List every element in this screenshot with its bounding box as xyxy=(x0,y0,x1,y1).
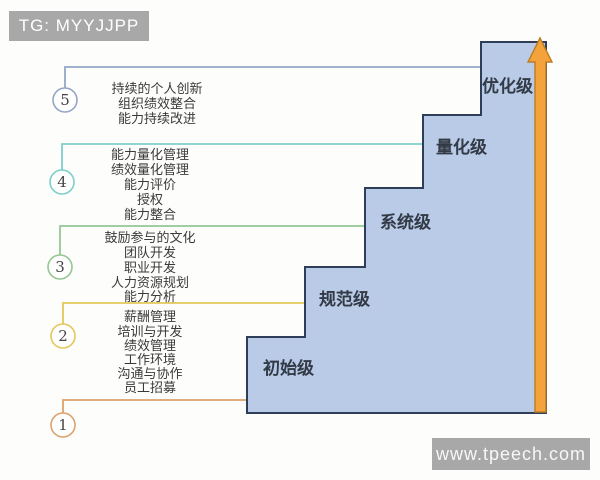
level-item: 鼓励参与的文化 xyxy=(104,230,195,246)
level-item: 薪酬管理 xyxy=(124,310,176,325)
step-label-initial: 初始级 xyxy=(263,358,314,378)
step-label-quantified: 量化级 xyxy=(436,137,487,157)
level-item: 能力持续改进 xyxy=(118,112,196,127)
level-item: 沟通与协作 xyxy=(117,367,182,382)
staircase-diagram-svg: 1 2 3 4 5 初始级 规范级 系统级 量化级 优化级 持续的个人创新 组织… xyxy=(0,0,600,480)
level-item: 能力整合 xyxy=(124,208,176,223)
level-item: 组织绩效整合 xyxy=(118,97,196,112)
step-label-optimizing: 优化级 xyxy=(482,76,533,96)
maturity-diagram: 1 2 3 4 5 初始级 规范级 系统级 量化级 优化级 持续的个人创新 组织… xyxy=(0,0,600,480)
level-item: 能力评价 xyxy=(124,178,176,193)
header-tag-text: TG: MYYJJPP xyxy=(19,16,140,36)
level-item: 能力分析 xyxy=(124,290,176,305)
level4-number: 4 xyxy=(57,173,67,191)
level3-number: 3 xyxy=(55,258,65,276)
level-item: 人力资源规划 xyxy=(111,276,189,291)
level-item: 员工招募 xyxy=(124,381,176,396)
level5-number: 5 xyxy=(60,91,70,109)
level-item: 工作环境 xyxy=(124,353,176,368)
level2-connector xyxy=(63,303,304,324)
level-item: 培训与开发 xyxy=(117,324,182,340)
header-tag: TG: MYYJJPP xyxy=(9,11,149,41)
level-item: 绩效量化管理 xyxy=(111,163,189,178)
level-item: 团队开发 xyxy=(124,245,176,261)
level-item: 职业开发 xyxy=(124,260,176,276)
step-label-standardized: 规范级 xyxy=(319,289,370,309)
level1-connector xyxy=(63,400,246,413)
level-item: 能力量化管理 xyxy=(111,148,189,163)
level1-number: 1 xyxy=(58,416,68,434)
level-item: 授权 xyxy=(137,192,163,208)
level-item: 绩效管理 xyxy=(124,339,176,354)
level-item: 持续的个人创新 xyxy=(111,81,202,97)
step-label-system: 系统级 xyxy=(380,212,431,232)
watermark-text: www.tpeech.com xyxy=(436,444,586,465)
watermark: www.tpeech.com xyxy=(432,438,590,470)
level2-number: 2 xyxy=(58,327,68,345)
